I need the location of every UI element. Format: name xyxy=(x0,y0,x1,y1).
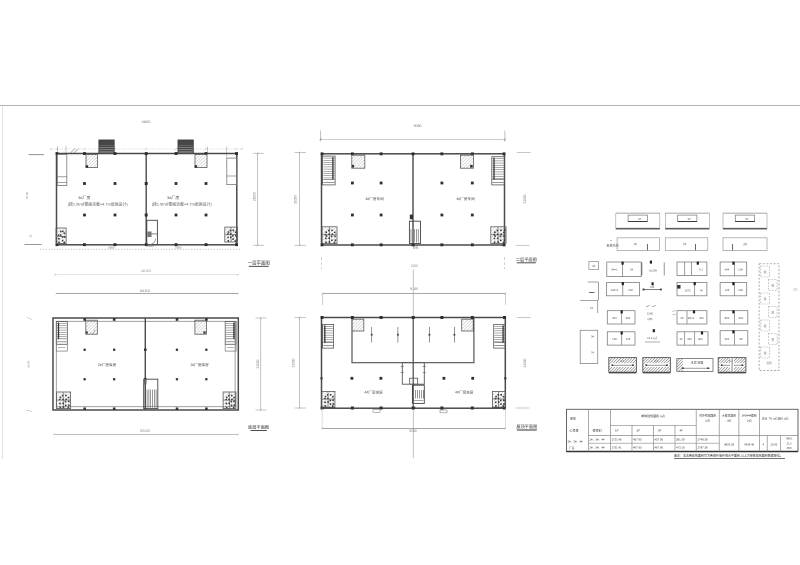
svg-text:2400: 2400 xyxy=(147,244,154,248)
svg-text:±0.00: ±0.00 xyxy=(25,192,29,199)
svg-text:备注：本表各建筑面积均为各层外墙外围水平面积,以上为单栋建筑: 备注：本表各建筑面积均为各层外墙外围水平面积,以上为单栋建筑面积数据单位。 xyxy=(674,453,783,458)
svg-text:9080: 9080 xyxy=(414,124,422,128)
svg-text:图: 图 xyxy=(764,297,767,301)
svg-text:名称凡例: 名称凡例 xyxy=(606,242,618,247)
svg-text:(按1.5t/㎡楼面活载×4.7m层高设计): (按1.5t/㎡楼面活载×4.7m层高设计) xyxy=(68,202,129,207)
svg-text:4#厂房夹层: 4#厂房夹层 xyxy=(455,390,474,395)
svg-text:4833.38: 4833.38 xyxy=(724,442,735,446)
svg-text:10#: 10# xyxy=(628,288,633,292)
svg-text:图: 图 xyxy=(764,270,767,274)
svg-text:(注): (注) xyxy=(793,288,797,292)
svg-text:(㎡): (㎡) xyxy=(705,418,710,422)
svg-text:4F: 4F xyxy=(680,429,684,433)
svg-text:12#2: 12#2 xyxy=(647,312,654,316)
svg-text:2#、3#、4#: 2#、3#、4# xyxy=(568,440,583,444)
svg-text:4#厂房车间: 4#厂房车间 xyxy=(365,196,384,201)
svg-text:9#1: 9#1 xyxy=(725,337,730,341)
svg-text:2F: 2F xyxy=(637,429,641,433)
svg-text:21000: 21000 xyxy=(256,359,260,368)
svg-text:6#2: 6#2 xyxy=(687,337,692,341)
svg-text:厂房: 厂房 xyxy=(569,446,575,450)
svg-text:457.90: 457.90 xyxy=(655,438,664,442)
svg-text:6#1: 6#1 xyxy=(612,316,617,320)
svg-text:1721.40: 1721.40 xyxy=(612,438,623,442)
svg-text:14.2+㎡: 14.2+㎡ xyxy=(647,336,657,340)
svg-text:图: 图 xyxy=(772,311,775,315)
svg-text:21000: 21000 xyxy=(292,358,296,367)
svg-text:8#: 8# xyxy=(739,337,743,341)
svg-text:10#: 10# xyxy=(738,288,743,292)
svg-text:64110: 64110 xyxy=(140,289,150,293)
svg-text:21000: 21000 xyxy=(253,192,257,201)
svg-text:2#厂房库房: 2#厂房库房 xyxy=(190,362,209,367)
svg-text:467.90: 467.90 xyxy=(655,446,664,450)
svg-text:3#厂房: 3#厂房 xyxy=(78,194,90,200)
svg-text:12#: 12# xyxy=(725,288,730,292)
svg-text:2#、3#、4#: 2#、3#、4# xyxy=(590,438,605,442)
svg-text:说明: 说明 xyxy=(766,361,772,365)
svg-text:13#: 13# xyxy=(650,285,655,289)
svg-text:8#2: 8#2 xyxy=(725,316,730,320)
svg-text:6#m2: 6#m2 xyxy=(688,316,695,320)
svg-text:心号楼: 心号楼 xyxy=(569,428,578,433)
svg-text:村外附属面积: 村外附属面积 xyxy=(699,413,716,417)
svg-text:2#厂房库房: 2#厂房库房 xyxy=(98,362,117,367)
svg-text:水泥 地面: 水泥 地面 xyxy=(691,360,704,365)
svg-text:12#×1: 12#×1 xyxy=(611,288,619,292)
svg-text:4#厂房车间: 4#厂房车间 xyxy=(456,196,475,201)
svg-text:2400: 2400 xyxy=(411,264,418,268)
svg-text:9 1: 9 1 xyxy=(699,268,703,272)
svg-text:7#: 7# xyxy=(699,289,703,293)
svg-text:9#m: 9#m xyxy=(698,337,703,341)
svg-text:2787.38: 2787.38 xyxy=(698,446,709,450)
svg-text:7#: 7# xyxy=(683,242,687,246)
svg-text:7M9.1: 7M9.1 xyxy=(786,438,794,441)
svg-text:7#: 7# xyxy=(633,242,637,246)
svg-text:底层平面图: 底层平面图 xyxy=(248,424,269,431)
svg-text:6 1: 6 1 xyxy=(729,359,733,363)
svg-text:13#: 13# xyxy=(612,337,617,341)
svg-text:4600: 4600 xyxy=(142,119,152,124)
svg-text:4#厂房夹层: 4#厂房夹层 xyxy=(364,390,383,395)
svg-text:21.3: 21.3 xyxy=(787,442,792,445)
svg-text:3434.40: 3434.40 xyxy=(744,442,755,446)
svg-text:5850: 5850 xyxy=(175,246,182,250)
svg-text:6≥13#: 6≥13# xyxy=(649,269,657,273)
svg-text:2#: 2# xyxy=(743,242,747,246)
svg-text:(㎡): (㎡) xyxy=(727,418,732,422)
svg-text:(2#): (2#) xyxy=(648,317,653,321)
svg-text:图: 图 xyxy=(772,338,775,342)
svg-text:12#: 12# xyxy=(626,337,631,341)
svg-text:3#厂房: 3#厂房 xyxy=(167,194,179,200)
svg-text:5850: 5850 xyxy=(108,246,115,250)
svg-text:(㎡): (㎡) xyxy=(747,418,752,422)
svg-text:2#3#4#面积: 2#3#4#面积 xyxy=(742,413,757,417)
svg-text:21000: 21000 xyxy=(523,194,527,203)
svg-text:图: 图 xyxy=(764,324,767,328)
svg-text:总计 7N (㎡) 超N (㎡): 总计 7N (㎡) 超N (㎡) xyxy=(762,417,788,421)
svg-text:2#: 2# xyxy=(630,268,634,272)
svg-text:楼梯: 楼梯 xyxy=(413,245,419,249)
svg-text:97: 97 xyxy=(688,217,692,221)
svg-text:92120: 92120 xyxy=(140,429,150,433)
svg-text:4 2: 4 2 xyxy=(620,359,624,363)
svg-text:图: 图 xyxy=(772,284,775,288)
svg-text:±0.00: ±0.00 xyxy=(27,360,31,367)
svg-text:38.8: 38.8 xyxy=(787,447,792,450)
svg-text:21000: 21000 xyxy=(294,195,298,204)
svg-text:9180: 9180 xyxy=(410,287,418,291)
svg-text:9280: 9280 xyxy=(409,429,417,433)
svg-text:281.39: 281.39 xyxy=(676,438,685,442)
svg-text:6#4: 6#4 xyxy=(699,316,704,320)
svg-text:2748.38: 2748.38 xyxy=(698,438,709,442)
svg-text:46100: 46100 xyxy=(141,269,152,273)
svg-text:图: 图 xyxy=(764,351,767,355)
svg-text:21000: 21000 xyxy=(523,358,527,367)
svg-text:单体建筑面积 (㎡): 单体建筑面积 (㎡) xyxy=(641,413,665,418)
svg-text:457.90: 457.90 xyxy=(633,438,642,442)
svg-text:2#、3#、4#: 2#、3#、4# xyxy=(590,446,605,450)
svg-text:97: 97 xyxy=(745,217,749,221)
svg-text:19.30: 19.30 xyxy=(770,442,777,446)
svg-text:1F: 1F xyxy=(615,429,619,433)
svg-text:大楼总面积: 大楼总面积 xyxy=(722,413,736,417)
svg-text:9#×1: 9#×1 xyxy=(611,268,618,272)
svg-text:6#4: 6#4 xyxy=(725,268,730,272)
svg-text:10?2: 10?2 xyxy=(684,289,691,293)
svg-text:467.90: 467.90 xyxy=(633,446,642,450)
svg-text:473.19: 473.19 xyxy=(676,446,685,450)
svg-text:10#: 10# xyxy=(738,268,743,272)
svg-text:97: 97 xyxy=(638,217,642,221)
svg-text:1751.41: 1751.41 xyxy=(612,446,623,450)
svg-text:4 2: 4 2 xyxy=(654,359,658,363)
svg-text:单体: 单体 xyxy=(570,416,576,421)
svg-text:(按1.5t/㎡楼面活载×4.7m层高设计): (按1.5t/㎡楼面活载×4.7m层高设计) xyxy=(152,202,213,207)
svg-text:楼号别: 楼号别 xyxy=(592,428,601,433)
svg-text:6#4: 6#4 xyxy=(626,316,631,320)
svg-text:3F: 3F xyxy=(658,429,662,433)
svg-text:6#1: 6#1 xyxy=(739,316,744,320)
